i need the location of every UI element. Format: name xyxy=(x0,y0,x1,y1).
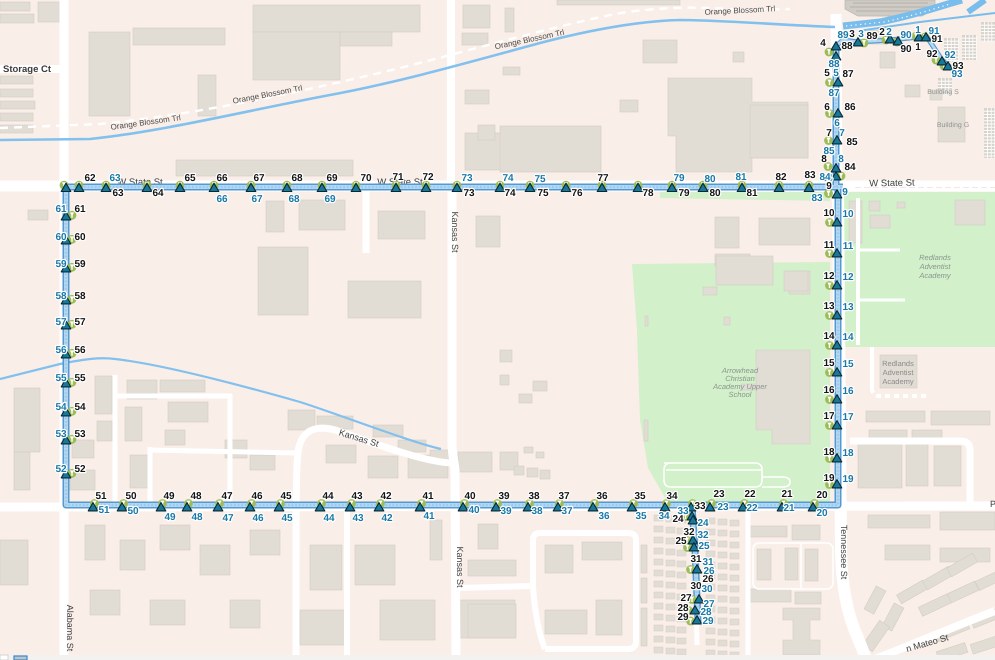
svg-text:51: 51 xyxy=(95,491,107,502)
svg-text:78: 78 xyxy=(642,188,654,199)
svg-text:87: 87 xyxy=(842,69,854,80)
svg-text:W State St: W State St xyxy=(869,178,915,190)
svg-text:11: 11 xyxy=(824,240,835,251)
svg-text:69: 69 xyxy=(326,173,338,184)
svg-text:63: 63 xyxy=(109,173,121,184)
svg-text:Redlands: Redlands xyxy=(882,359,914,368)
svg-text:13: 13 xyxy=(823,301,835,312)
svg-text:22: 22 xyxy=(746,503,758,514)
svg-text:Building G: Building G xyxy=(937,121,969,129)
svg-text:60: 60 xyxy=(55,232,67,243)
svg-text:54: 54 xyxy=(74,402,86,413)
svg-text:66: 66 xyxy=(216,194,228,205)
svg-text:P: P xyxy=(990,499,995,509)
svg-text:92: 92 xyxy=(926,49,938,60)
svg-text:3: 3 xyxy=(858,29,864,40)
svg-text:59: 59 xyxy=(74,259,86,270)
svg-text:52: 52 xyxy=(74,464,86,475)
svg-text:58: 58 xyxy=(74,291,86,302)
svg-text:30: 30 xyxy=(701,584,713,595)
svg-text:33: 33 xyxy=(694,501,706,512)
svg-text:26: 26 xyxy=(703,566,715,577)
svg-text:33: 33 xyxy=(677,506,689,517)
svg-text:17: 17 xyxy=(823,411,835,422)
svg-text:4: 4 xyxy=(820,38,826,49)
svg-text:16: 16 xyxy=(842,386,854,397)
svg-text:65: 65 xyxy=(184,173,196,184)
svg-text:38: 38 xyxy=(528,491,540,502)
svg-text:29: 29 xyxy=(702,616,714,627)
svg-text:56: 56 xyxy=(74,345,86,356)
svg-text:41: 41 xyxy=(422,491,434,502)
svg-text:83: 83 xyxy=(811,193,823,204)
svg-text:84: 84 xyxy=(819,172,831,183)
svg-text:1: 1 xyxy=(915,42,921,53)
svg-text:7: 7 xyxy=(839,128,845,139)
svg-text:90: 90 xyxy=(900,30,912,41)
svg-text:Storage Ct: Storage Ct xyxy=(3,64,52,75)
svg-text:49: 49 xyxy=(164,512,176,523)
svg-text:Alabama St: Alabama St xyxy=(65,605,75,652)
svg-text:16: 16 xyxy=(823,385,835,396)
svg-text:25: 25 xyxy=(675,536,687,547)
svg-text:30: 30 xyxy=(690,581,702,592)
svg-text:75: 75 xyxy=(534,174,546,185)
svg-text:48: 48 xyxy=(190,491,202,502)
svg-text:23: 23 xyxy=(717,502,729,513)
svg-text:44: 44 xyxy=(322,491,334,502)
svg-text:47: 47 xyxy=(222,513,234,524)
svg-text:15: 15 xyxy=(823,358,835,369)
svg-text:1: 1 xyxy=(915,25,921,36)
svg-text:7: 7 xyxy=(826,128,832,139)
svg-text:6: 6 xyxy=(824,102,830,113)
svg-text:81: 81 xyxy=(746,188,758,199)
svg-text:43: 43 xyxy=(351,491,363,502)
svg-text:66: 66 xyxy=(216,173,228,184)
svg-text:51: 51 xyxy=(98,505,110,516)
svg-text:91: 91 xyxy=(928,26,940,37)
svg-text:64: 64 xyxy=(152,188,164,199)
svg-text:32: 32 xyxy=(697,530,709,541)
svg-text:92: 92 xyxy=(944,50,956,61)
svg-text:74: 74 xyxy=(502,173,514,184)
svg-text:2: 2 xyxy=(886,27,892,38)
svg-text:63: 63 xyxy=(112,188,124,199)
svg-text:Kansas St: Kansas St xyxy=(455,546,465,588)
svg-text:34: 34 xyxy=(666,491,678,502)
svg-text:89: 89 xyxy=(837,30,849,41)
svg-text:14: 14 xyxy=(842,332,854,343)
svg-text:68: 68 xyxy=(288,194,300,205)
svg-text:8: 8 xyxy=(838,154,844,165)
svg-text:14: 14 xyxy=(823,331,835,342)
svg-text:42: 42 xyxy=(380,491,392,502)
svg-text:72: 72 xyxy=(422,172,434,183)
svg-text:49: 49 xyxy=(163,491,175,502)
svg-text:71: 71 xyxy=(392,172,404,183)
svg-text:76: 76 xyxy=(571,188,583,199)
svg-text:53: 53 xyxy=(74,429,86,440)
svg-text:88: 88 xyxy=(841,41,853,52)
svg-text:55: 55 xyxy=(55,373,67,384)
svg-text:44: 44 xyxy=(323,513,335,524)
svg-text:60: 60 xyxy=(74,232,86,243)
svg-text:57: 57 xyxy=(74,317,86,328)
svg-text:3: 3 xyxy=(849,29,855,40)
svg-text:22: 22 xyxy=(744,489,756,500)
svg-text:38: 38 xyxy=(531,506,543,517)
svg-text:11: 11 xyxy=(843,241,854,252)
svg-text:40: 40 xyxy=(464,491,476,502)
svg-text:35: 35 xyxy=(635,511,647,522)
svg-text:Kansas St: Kansas St xyxy=(450,211,460,253)
svg-text:73: 73 xyxy=(463,188,475,199)
svg-text:45: 45 xyxy=(280,491,292,502)
svg-text:10: 10 xyxy=(842,209,854,220)
svg-text:21: 21 xyxy=(783,503,795,514)
svg-text:Building S: Building S xyxy=(927,88,959,96)
svg-text:21: 21 xyxy=(781,489,793,500)
svg-text:Adventist: Adventist xyxy=(883,368,915,377)
svg-text:77: 77 xyxy=(597,173,609,184)
svg-text:53: 53 xyxy=(55,429,67,440)
svg-text:42: 42 xyxy=(381,513,393,524)
svg-text:20: 20 xyxy=(816,508,828,519)
svg-text:Academy: Academy xyxy=(882,377,914,386)
svg-text:31: 31 xyxy=(690,554,702,565)
svg-text:46: 46 xyxy=(252,513,264,524)
svg-text:47: 47 xyxy=(221,491,233,502)
svg-text:58: 58 xyxy=(55,291,67,302)
svg-text:52: 52 xyxy=(55,464,67,475)
svg-text:29: 29 xyxy=(677,612,689,623)
svg-text:24: 24 xyxy=(697,518,709,529)
svg-text:87: 87 xyxy=(828,88,840,99)
svg-text:55: 55 xyxy=(74,373,86,384)
svg-text:Tennessee St: Tennessee St xyxy=(839,525,849,580)
svg-text:39: 39 xyxy=(500,506,512,517)
svg-text:Redlands: Redlands xyxy=(919,253,951,262)
svg-text:69: 69 xyxy=(324,194,336,205)
svg-text:70: 70 xyxy=(360,173,372,184)
svg-text:67: 67 xyxy=(253,173,265,184)
svg-text:41: 41 xyxy=(423,511,435,522)
svg-text:80: 80 xyxy=(704,174,716,185)
svg-text:68: 68 xyxy=(291,173,303,184)
svg-text:36: 36 xyxy=(598,511,610,522)
svg-text:45: 45 xyxy=(281,513,293,524)
svg-text:School: School xyxy=(729,390,752,399)
svg-text:34: 34 xyxy=(658,511,670,522)
svg-text:79: 79 xyxy=(678,188,690,199)
svg-text:62: 62 xyxy=(84,173,96,184)
svg-text:75: 75 xyxy=(537,188,549,199)
svg-text:5: 5 xyxy=(833,68,839,79)
svg-text:17: 17 xyxy=(842,412,854,423)
svg-text:84: 84 xyxy=(844,162,856,173)
svg-text:61: 61 xyxy=(74,204,86,215)
svg-text:12: 12 xyxy=(823,271,835,282)
svg-text:Academy: Academy xyxy=(918,271,952,280)
svg-text:37: 37 xyxy=(558,491,570,502)
svg-text:15: 15 xyxy=(842,359,854,370)
svg-text:39: 39 xyxy=(498,491,510,502)
svg-text:9: 9 xyxy=(842,187,848,198)
svg-text:12: 12 xyxy=(842,272,854,283)
svg-text:57: 57 xyxy=(55,317,67,328)
svg-text:18: 18 xyxy=(842,448,854,459)
svg-text:50: 50 xyxy=(127,506,139,517)
svg-text:54: 54 xyxy=(55,402,67,413)
svg-text:46: 46 xyxy=(251,491,263,502)
svg-text:18: 18 xyxy=(823,447,835,458)
svg-text:13: 13 xyxy=(842,302,854,313)
svg-text:10: 10 xyxy=(823,208,835,219)
svg-text:73: 73 xyxy=(461,173,473,184)
svg-text:50: 50 xyxy=(125,491,137,502)
svg-text:82: 82 xyxy=(775,172,787,183)
svg-text:25: 25 xyxy=(698,541,710,552)
svg-text:90: 90 xyxy=(900,44,912,55)
svg-text:35: 35 xyxy=(634,491,646,502)
svg-text:19: 19 xyxy=(842,474,854,485)
svg-text:56: 56 xyxy=(55,345,67,356)
svg-text:93: 93 xyxy=(951,69,963,80)
svg-text:23: 23 xyxy=(713,489,725,500)
svg-text:40: 40 xyxy=(468,505,480,516)
svg-text:37: 37 xyxy=(561,506,573,517)
svg-text:79: 79 xyxy=(673,173,685,184)
svg-text:83: 83 xyxy=(804,170,816,181)
svg-text:Adventist: Adventist xyxy=(919,262,952,271)
svg-text:19: 19 xyxy=(823,473,835,484)
svg-text:59: 59 xyxy=(55,259,67,270)
svg-text:20: 20 xyxy=(816,490,828,501)
svg-text:81: 81 xyxy=(735,172,747,183)
svg-text:67: 67 xyxy=(251,194,263,205)
svg-text:85: 85 xyxy=(846,137,858,148)
svg-text:86: 86 xyxy=(844,102,856,113)
svg-text:2: 2 xyxy=(879,27,885,38)
svg-text:85: 85 xyxy=(823,146,835,157)
svg-text:80: 80 xyxy=(709,188,721,199)
svg-text:89: 89 xyxy=(866,31,878,42)
svg-text:48: 48 xyxy=(191,512,203,523)
svg-text:36: 36 xyxy=(596,491,608,502)
svg-text:43: 43 xyxy=(352,513,364,524)
svg-text:74: 74 xyxy=(504,188,516,199)
svg-text:61: 61 xyxy=(55,204,67,215)
